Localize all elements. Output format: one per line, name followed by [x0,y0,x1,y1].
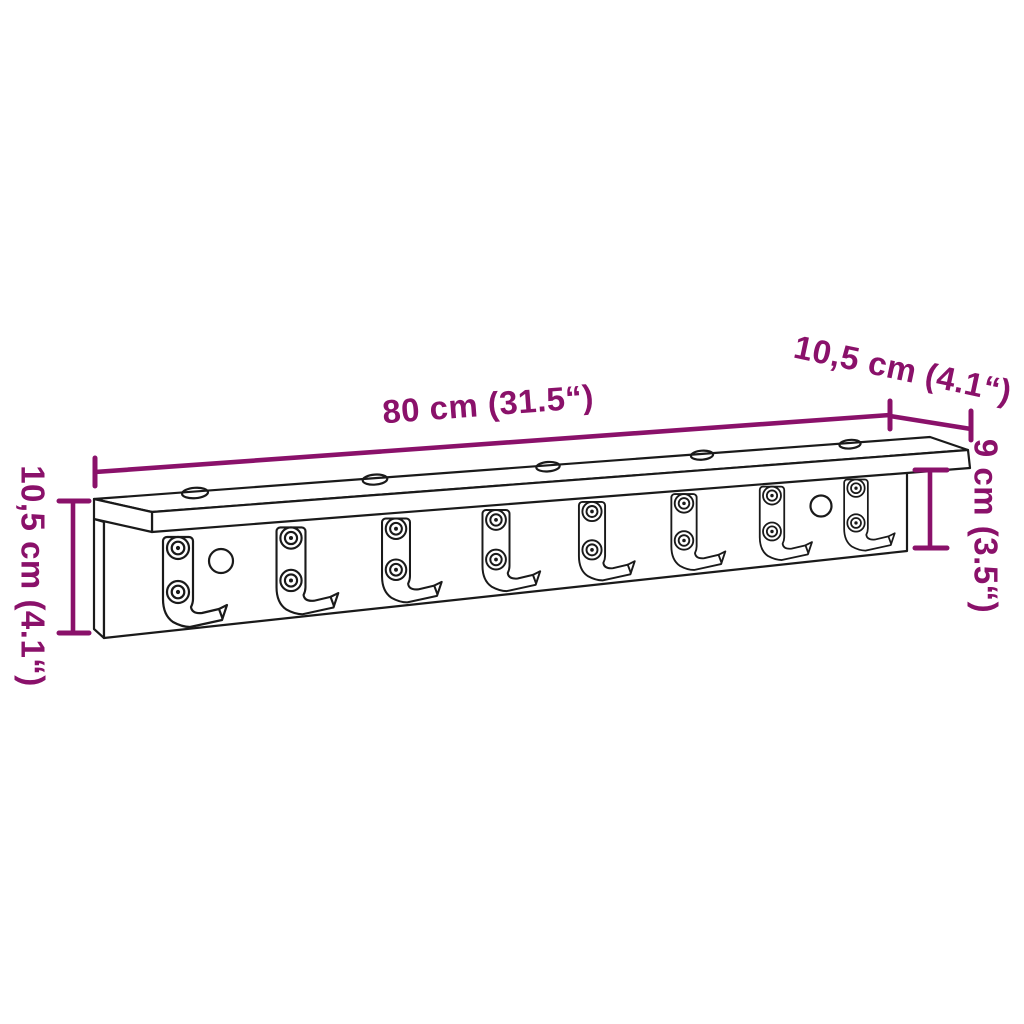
screw-icon [582,540,601,559]
screw-center-dot [590,548,594,552]
screw-icon [486,550,506,570]
screw-center-dot [590,510,594,514]
depth-dimension-label: 10,5 cm (4.1“) [791,328,1015,410]
screw-icon [280,570,301,591]
screw-icon [386,519,407,540]
panel-left-edge [94,519,104,638]
screw-center-dot [289,578,293,582]
height-right-dimension-label: 9 cm (3.5“) [968,439,1005,613]
screw-center-dot [394,568,398,572]
product-dimension-diagram: 80 cm (31.5“) 10,5 cm (4.1“) 9 cm (3.5“)… [0,0,1024,1024]
width-dimension-label: 80 cm (31.5“) [381,378,595,431]
depth-dimension-line [890,416,971,429]
screw-icon [763,487,781,505]
screw-icon [280,527,301,548]
screw-center-dot [176,546,180,550]
screw-icon [167,537,189,559]
screw-center-dot [682,539,686,543]
screw-center-dot [176,590,180,594]
screw-icon [763,523,781,541]
screw-center-dot [770,494,773,497]
screw-center-dot [494,558,498,562]
screw-icon [847,480,864,497]
screw-center-dot [494,518,498,522]
screw-center-dot [289,536,293,540]
screw-icon [847,514,864,531]
screw-icon [675,531,694,550]
screw-icon [386,560,407,581]
dimension-height-left: 10,5 cm (4.1“) [15,465,90,687]
screw-center-dot [854,521,857,524]
screw-icon [486,510,506,530]
screw-center-dot [682,502,686,506]
screw-center-dot [394,527,398,531]
screw-icon [675,494,694,513]
height-left-dimension-label: 10,5 cm (4.1“) [15,465,52,687]
screw-icon [582,502,601,521]
diagram-canvas: 80 cm (31.5“) 10,5 cm (4.1“) 9 cm (3.5“)… [0,0,1024,1024]
screw-center-dot [770,530,773,533]
dimension-depth: 10,5 cm (4.1“) [791,328,1015,440]
screw-center-dot [854,487,857,490]
screw-icon [167,581,189,603]
